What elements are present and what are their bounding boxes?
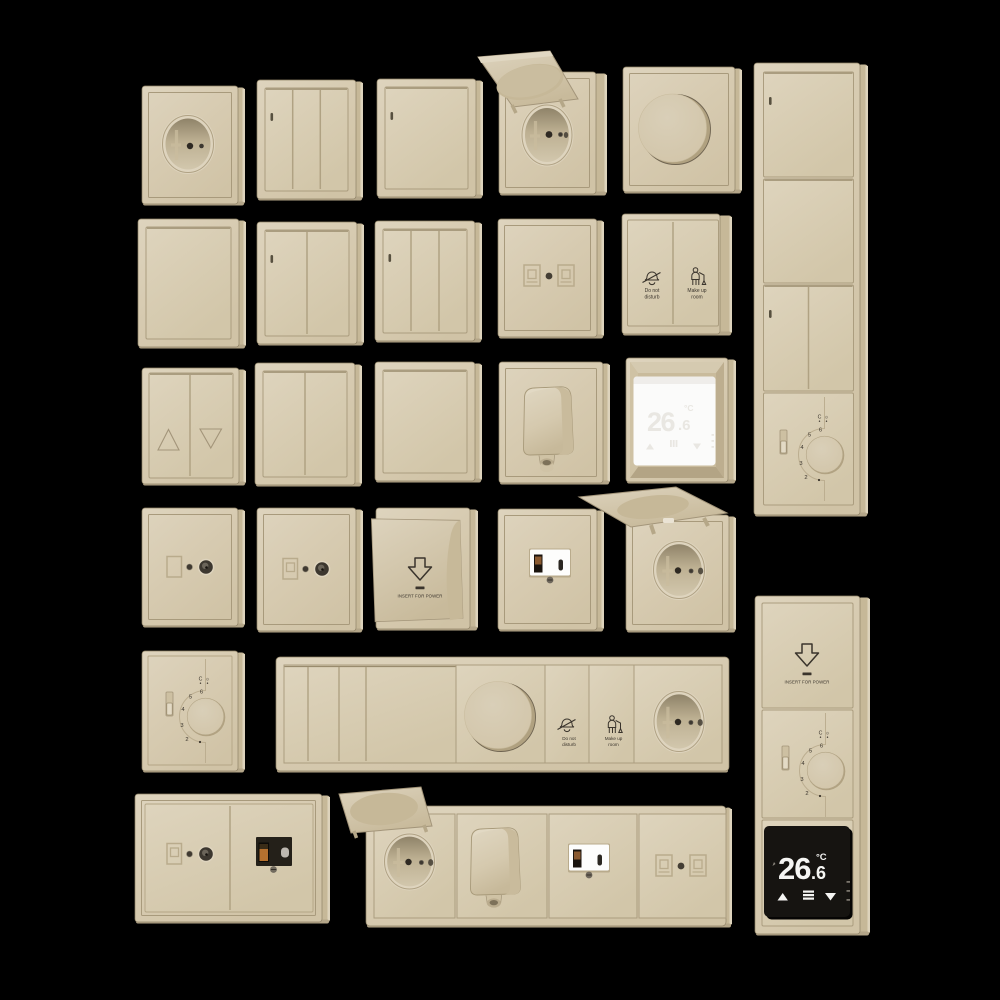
svg-text:INSERT FOR POWER: INSERT FOR POWER [398, 594, 443, 599]
svg-text:6: 6 [820, 744, 823, 750]
svg-text:INSERT FOR POWER: INSERT FOR POWER [785, 680, 830, 685]
svg-text:5: 5 [809, 749, 812, 755]
svg-text:.6: .6 [678, 417, 691, 434]
svg-text:disturb: disturb [644, 295, 659, 301]
svg-text:☼: ☼ [825, 731, 830, 737]
svg-text:2: 2 [804, 475, 807, 481]
svg-text:☼: ☼ [205, 677, 210, 683]
svg-text:Make up: Make up [605, 736, 623, 741]
svg-text:C: C [819, 731, 823, 737]
svg-text:5: 5 [808, 433, 811, 439]
svg-text:Make up: Make up [687, 288, 706, 294]
svg-text:°C: °C [816, 852, 827, 863]
svg-text:°C: °C [684, 403, 694, 413]
svg-text:3: 3 [800, 777, 803, 783]
svg-text:Do not: Do not [562, 736, 576, 741]
svg-text:disturb: disturb [562, 742, 576, 747]
svg-text:C: C [199, 677, 203, 683]
svg-text:3: 3 [799, 461, 802, 467]
svg-text:☼: ☼ [824, 415, 829, 421]
svg-text:.6: .6 [811, 863, 826, 883]
svg-text:C: C [818, 415, 822, 421]
svg-text:2: 2 [185, 737, 188, 743]
svg-text:room: room [691, 295, 702, 301]
svg-text:5: 5 [189, 695, 192, 701]
svg-text:2: 2 [805, 791, 808, 797]
svg-text:3: 3 [180, 723, 183, 729]
svg-text:6: 6 [200, 690, 203, 696]
svg-text:26: 26 [647, 407, 676, 437]
svg-text:6: 6 [819, 428, 822, 434]
svg-text:Do not: Do not [645, 288, 660, 294]
svg-text:26: 26 [778, 851, 811, 886]
svg-text:room: room [608, 742, 619, 747]
